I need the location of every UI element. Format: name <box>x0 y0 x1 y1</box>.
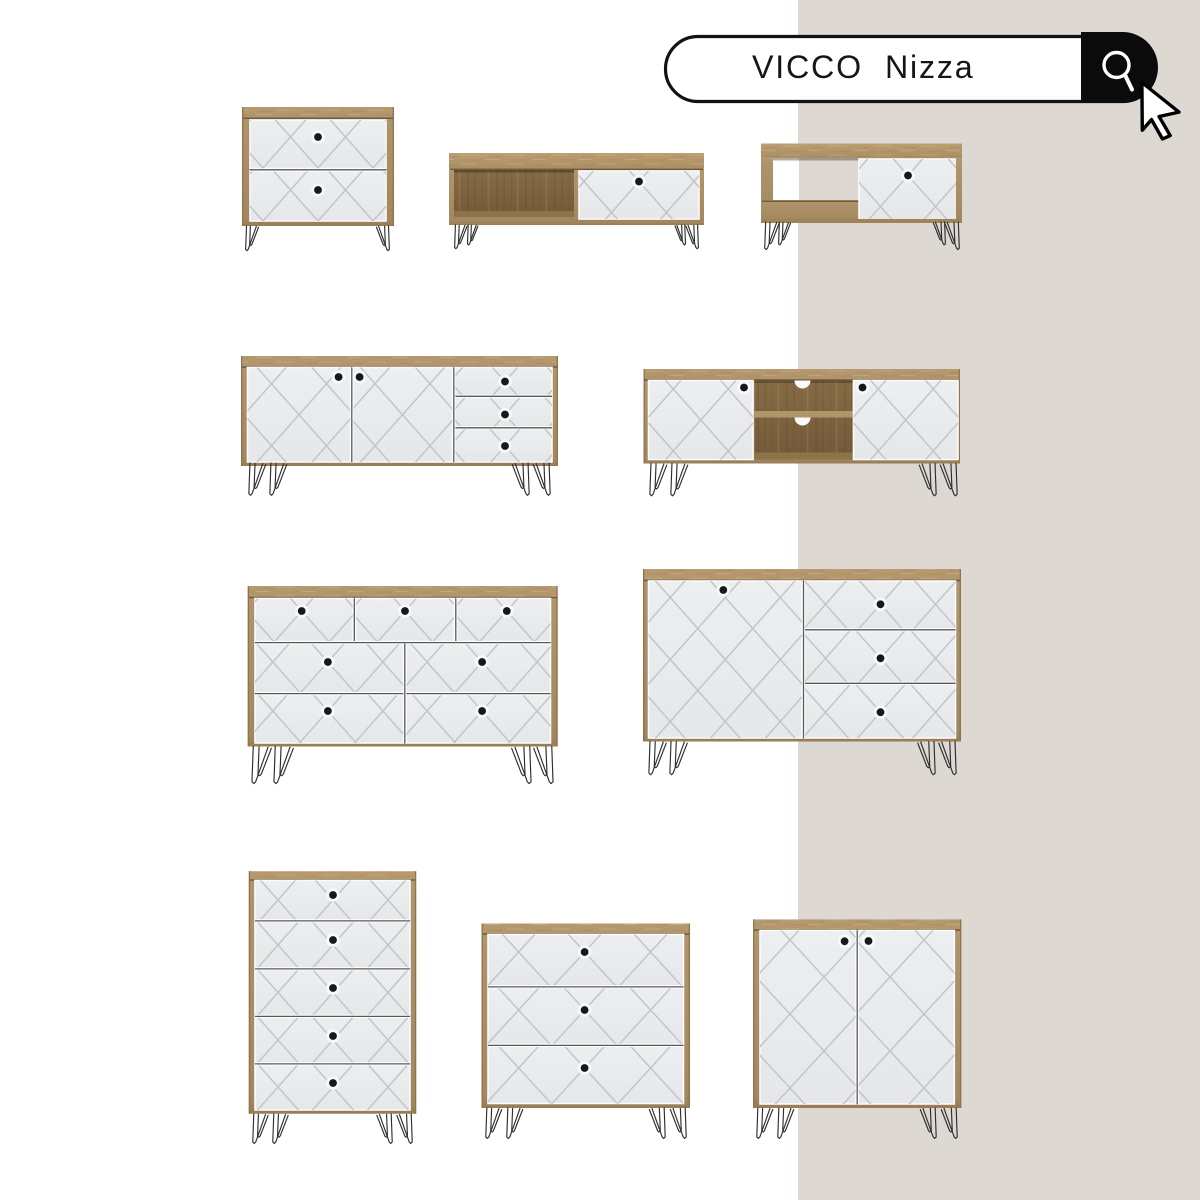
svg-text:Nizza: Nizza <box>885 49 975 85</box>
svg-text:VICCO: VICCO <box>752 49 863 85</box>
